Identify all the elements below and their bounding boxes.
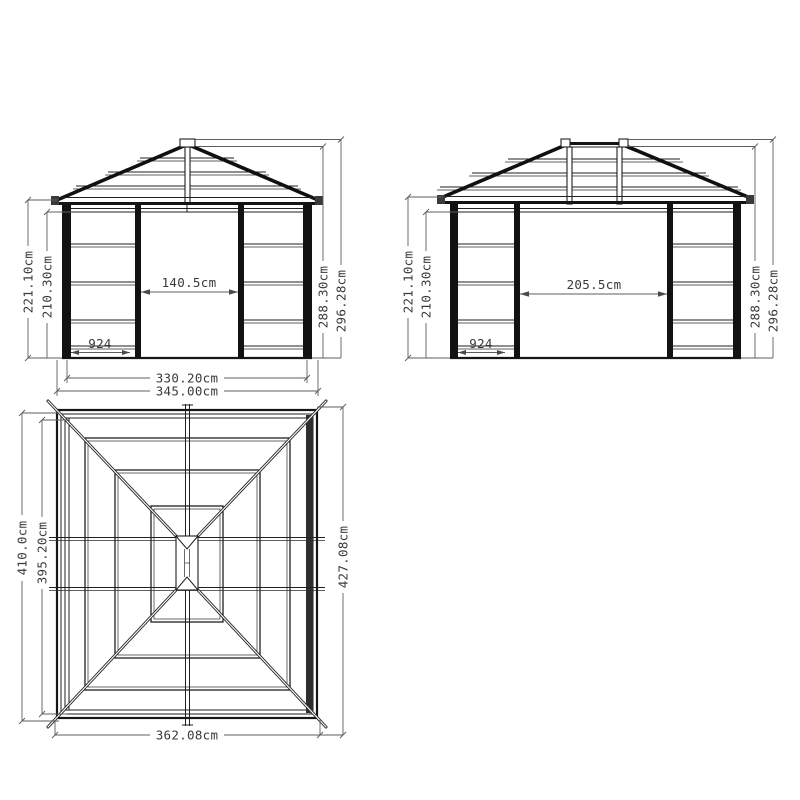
plan-ridge-box [176,536,198,590]
side-height-wall-text: 210.30cm [419,256,434,319]
front-width-total-text: 345.00cm [156,384,219,399]
plan-depth-frame-label: 395.20cm [35,517,50,589]
side-right-panel-rails [673,244,733,349]
side-king-post-left [567,147,572,204]
gazebo-technical-drawing: 221.10cm 210.30cm 288.30cm [0,0,800,800]
side-height-roof-label: 288.30cm [748,261,763,333]
front-height-roof-text: 288.30cm [316,266,331,329]
side-height-post-text: 221.10cm [401,251,416,314]
plan-depth-frame-text: 395.20cm [35,522,50,585]
side-roof [437,139,754,204]
side-height-total-label: 296.28cm [766,265,781,337]
front-elevation-view: 221.10cm 210.30cm 288.30cm [21,137,349,399]
front-height-total-text: 296.28cm [334,270,349,333]
plan-view: 410.0cm 395.20cm 427.08cm [15,401,351,743]
front-height-post-label: 221.10cm [21,246,36,318]
plan-roof-depth-label: 427.08cm [336,521,351,593]
front-panel-code-label: 924 [88,336,111,351]
side-door-jamb-right [667,204,673,358]
side-left-panel-rails [458,244,514,349]
front-height-roof-label: 288.30cm [316,261,331,333]
plan-depth-total-text: 410.0cm [15,521,30,576]
front-width-total-label: 345.00cm [150,384,224,399]
front-post-right [303,204,312,358]
side-post-left [450,204,458,358]
drawing-sheet: 221.10cm 210.30cm 288.30cm [0,0,800,800]
side-panel-code-label: 924 [469,336,492,351]
side-door-jamb-left [514,204,520,358]
side-height-total-text: 296.28cm [766,270,781,333]
side-post-right [733,204,741,358]
side-king-post-right [617,147,622,204]
plan-roof-depth-text: 427.08cm [336,526,351,589]
side-elevation-view: 221.10cm 210.30cm 288.30cm [401,137,781,362]
front-finial-cap [180,139,195,147]
side-height-post-label: 221.10cm [401,246,416,318]
front-height-wall-label: 210.30cm [40,251,55,323]
front-height-wall-text: 210.30cm [40,256,55,319]
front-right-panel-rails [244,244,303,349]
front-door-jamb-right [238,204,244,358]
plan-roof-width-label: 362.08cm [150,728,224,743]
front-door-jamb-left [135,204,141,358]
side-ridge-cap-left [561,139,570,147]
plan-roof-frame [48,401,326,727]
side-ridge-cap-right [619,139,628,147]
front-roof [51,139,323,205]
side-door-width-label: 205.5cm [567,277,622,292]
plan-right-eave-band [306,415,313,713]
front-king-post [185,147,190,204]
front-post-left [62,204,71,358]
front-door-width-label: 140.5cm [162,275,217,290]
front-left-panel-rails [71,244,135,349]
front-height-total-label: 296.28cm [334,265,349,337]
side-height-roof-text: 288.30cm [748,266,763,329]
plan-depth-total-label: 410.0cm [15,515,30,581]
side-height-wall-label: 210.30cm [419,251,434,323]
plan-roof-width-text: 362.08cm [156,728,219,743]
front-height-post-text: 221.10cm [21,251,36,314]
